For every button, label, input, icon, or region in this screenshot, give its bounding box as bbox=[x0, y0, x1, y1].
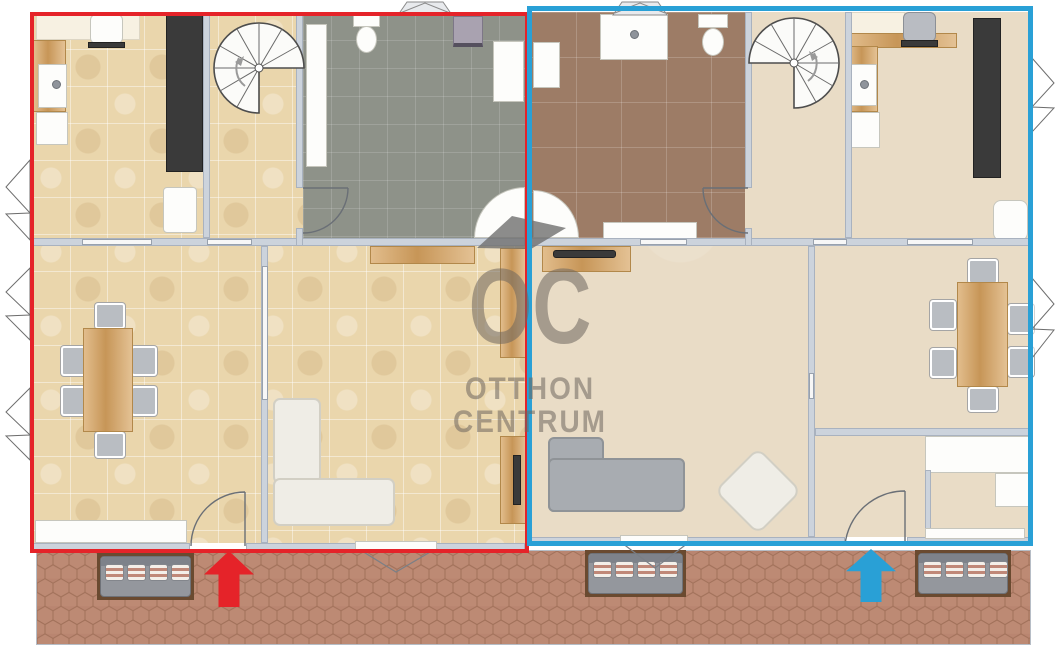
fridge-base bbox=[88, 42, 125, 48]
dining-chair bbox=[930, 348, 956, 378]
shower-tray bbox=[533, 42, 560, 88]
window bbox=[925, 528, 1025, 539]
wall-opening bbox=[262, 266, 268, 400]
dining-table bbox=[83, 328, 133, 432]
toilet-bowl bbox=[702, 28, 724, 56]
wall bbox=[203, 12, 210, 238]
wall-opening bbox=[207, 239, 252, 245]
window-sill bbox=[35, 520, 187, 543]
bookshelf bbox=[500, 248, 526, 358]
toilet-bowl bbox=[356, 26, 377, 53]
window-symbol bbox=[6, 268, 30, 340]
tall-cabinet bbox=[166, 13, 203, 172]
wall bbox=[745, 228, 752, 246]
faucet-icon bbox=[860, 80, 869, 89]
washing-machine bbox=[453, 16, 483, 47]
window-symbol bbox=[1032, 278, 1054, 358]
floor-plan: OC OTTHON CENTRUM bbox=[0, 0, 1059, 661]
dining-chair bbox=[930, 300, 956, 330]
wall-opening bbox=[640, 239, 687, 245]
wall bbox=[296, 12, 303, 188]
dining-chair bbox=[95, 432, 125, 458]
wall bbox=[745, 12, 752, 188]
tv bbox=[553, 250, 616, 258]
wall-opening bbox=[82, 239, 152, 245]
dining-chair bbox=[131, 346, 157, 376]
corner-sofa bbox=[273, 478, 395, 526]
wall bbox=[845, 12, 852, 238]
wall-opening bbox=[809, 373, 814, 399]
dining-chair bbox=[968, 387, 998, 412]
dining-chair bbox=[968, 259, 998, 284]
patio-sofa bbox=[97, 553, 194, 600]
french-door bbox=[620, 535, 688, 545]
wardrobe bbox=[973, 18, 1001, 178]
dining-chair bbox=[95, 303, 125, 329]
kitchen-counter bbox=[36, 13, 140, 40]
bathtub bbox=[603, 222, 697, 239]
sofa bbox=[548, 458, 685, 512]
sideboard bbox=[370, 246, 475, 264]
dining-table bbox=[957, 282, 1008, 387]
faucet-icon bbox=[630, 30, 639, 39]
wall bbox=[531, 537, 845, 545]
wall bbox=[33, 543, 190, 551]
dining-chair bbox=[131, 386, 157, 416]
built-in-closet bbox=[925, 436, 1030, 473]
dining-chair bbox=[1008, 304, 1034, 334]
kitchen-cabinet bbox=[36, 112, 68, 145]
built-in-closet bbox=[995, 473, 1029, 507]
wall-opening bbox=[907, 239, 973, 245]
patio-sofa bbox=[915, 550, 1011, 597]
kitchen-counter bbox=[848, 12, 905, 35]
bathroom-radiator bbox=[306, 24, 327, 167]
french-door bbox=[355, 541, 437, 551]
wall bbox=[815, 428, 1029, 436]
fridge bbox=[90, 14, 123, 44]
wall bbox=[296, 228, 303, 246]
window-symbol bbox=[6, 388, 30, 460]
armchair-small bbox=[993, 200, 1028, 241]
tv bbox=[513, 455, 521, 505]
bathroom-vanity bbox=[493, 41, 524, 102]
dishwasher bbox=[163, 187, 197, 233]
toilet-tank bbox=[698, 14, 728, 28]
window-symbol bbox=[6, 160, 30, 240]
fridge-base bbox=[901, 40, 938, 47]
faucet-icon bbox=[52, 80, 61, 89]
fridge bbox=[903, 12, 936, 42]
wall-opening bbox=[813, 239, 847, 245]
kitchen-cabinet bbox=[850, 112, 880, 148]
dining-chair bbox=[1008, 347, 1034, 377]
corner-sofa-chaise bbox=[273, 398, 321, 484]
window-symbol bbox=[1032, 58, 1054, 132]
patio-sofa bbox=[585, 550, 686, 597]
